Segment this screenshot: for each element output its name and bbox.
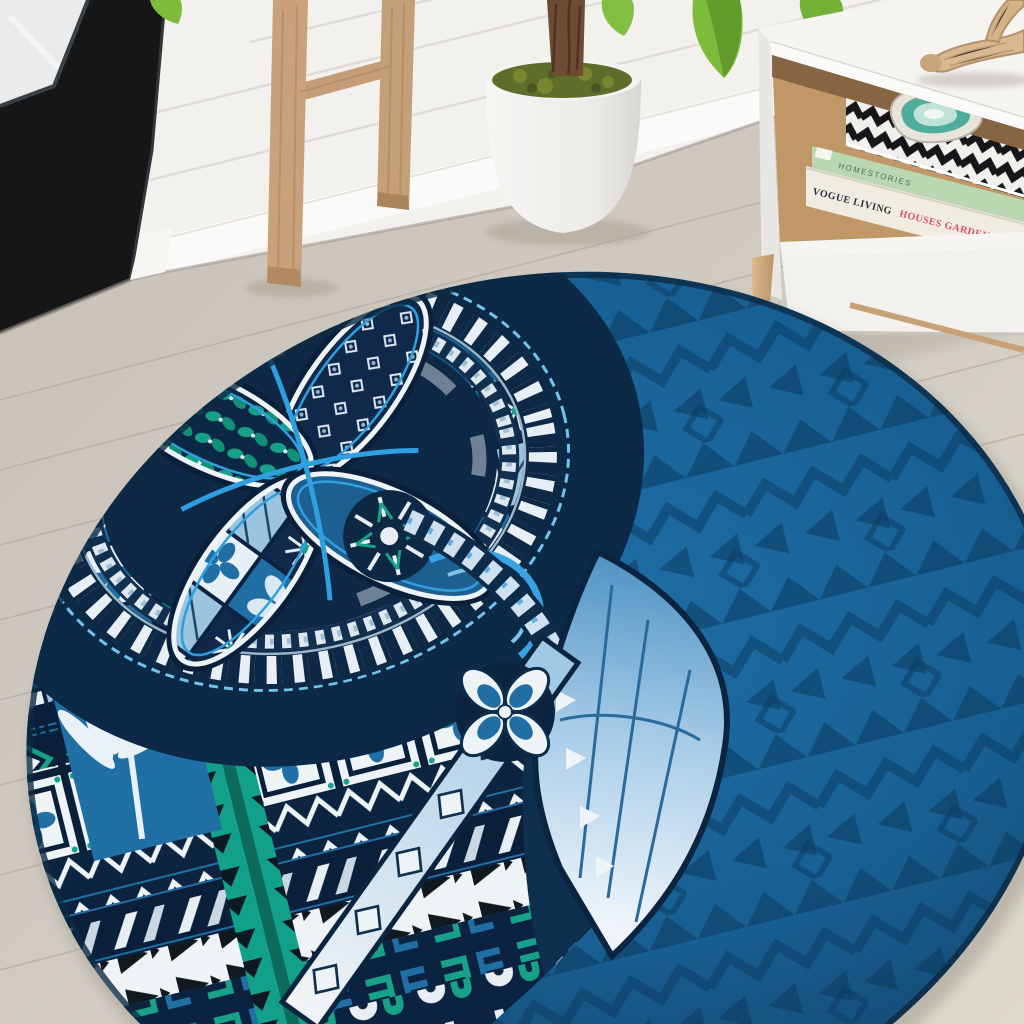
ladder-left-stile (267, 0, 308, 287)
driftwood-knot (920, 54, 942, 72)
ladder-right-stile (377, 0, 415, 210)
scene: HOMESTORIES VOGUE LIVINGHOUSES GARDENS P… (0, 0, 1024, 1024)
product-photo: HOMESTORIES VOGUE LIVINGHOUSES GARDENS P… (0, 0, 1024, 1024)
frangipani-flower (453, 660, 556, 763)
